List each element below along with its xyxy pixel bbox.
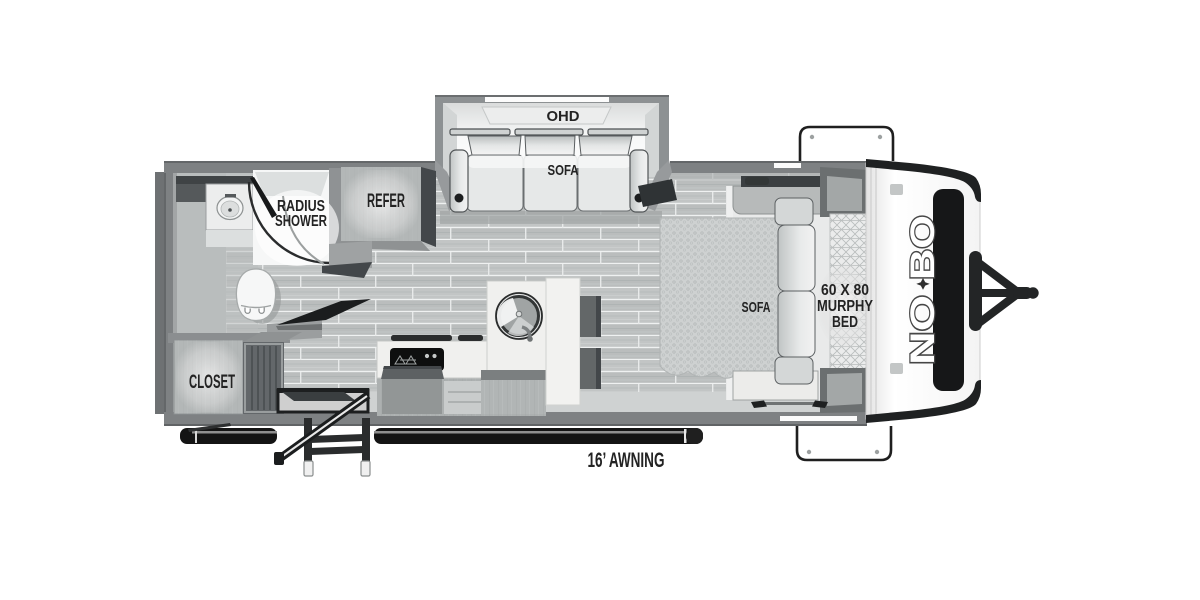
svg-text:BO: BO (904, 215, 942, 280)
svg-text:SOFA: SOFA (548, 162, 579, 179)
svg-text:REFER: REFER (367, 191, 405, 212)
svg-text:SOFA: SOFA (742, 299, 771, 316)
svg-text:CLOSET: CLOSET (189, 372, 235, 393)
svg-text:BED: BED (832, 314, 858, 331)
svg-text:NO: NO (904, 295, 942, 365)
svg-text:OHD: OHD (547, 108, 580, 125)
svg-text:60 X 80: 60 X 80 (821, 282, 869, 299)
svg-text:MURPHY: MURPHY (817, 298, 873, 315)
svg-text:16’ AWNING: 16’ AWNING (588, 449, 665, 472)
svg-text:SHOWER: SHOWER (275, 213, 327, 230)
